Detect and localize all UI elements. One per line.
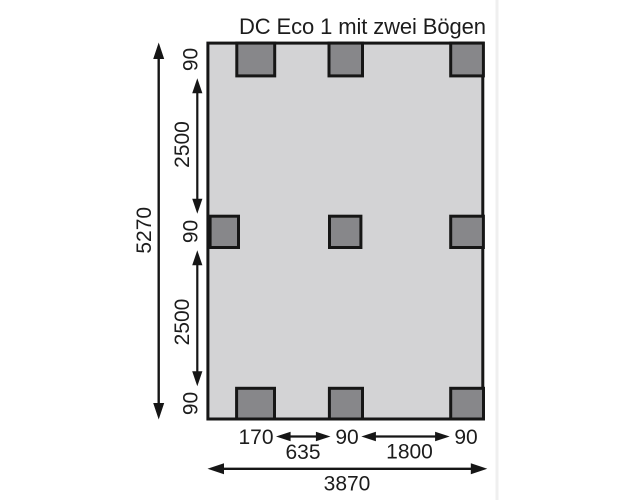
svg-text:90: 90 (335, 426, 358, 449)
svg-text:DC Eco 1 mit zwei Bögen: DC Eco 1 mit zwei Bögen (239, 14, 486, 39)
svg-text:5270: 5270 (133, 207, 156, 254)
svg-text:90: 90 (180, 48, 203, 71)
svg-text:90: 90 (454, 426, 477, 449)
svg-text:90: 90 (180, 220, 203, 243)
svg-text:3870: 3870 (324, 473, 371, 496)
svg-text:635: 635 (285, 441, 320, 464)
svg-text:2500: 2500 (171, 299, 194, 346)
svg-text:90: 90 (180, 392, 203, 415)
svg-text:170: 170 (238, 426, 273, 449)
svg-text:2500: 2500 (171, 121, 194, 168)
svg-text:1800: 1800 (386, 441, 433, 464)
